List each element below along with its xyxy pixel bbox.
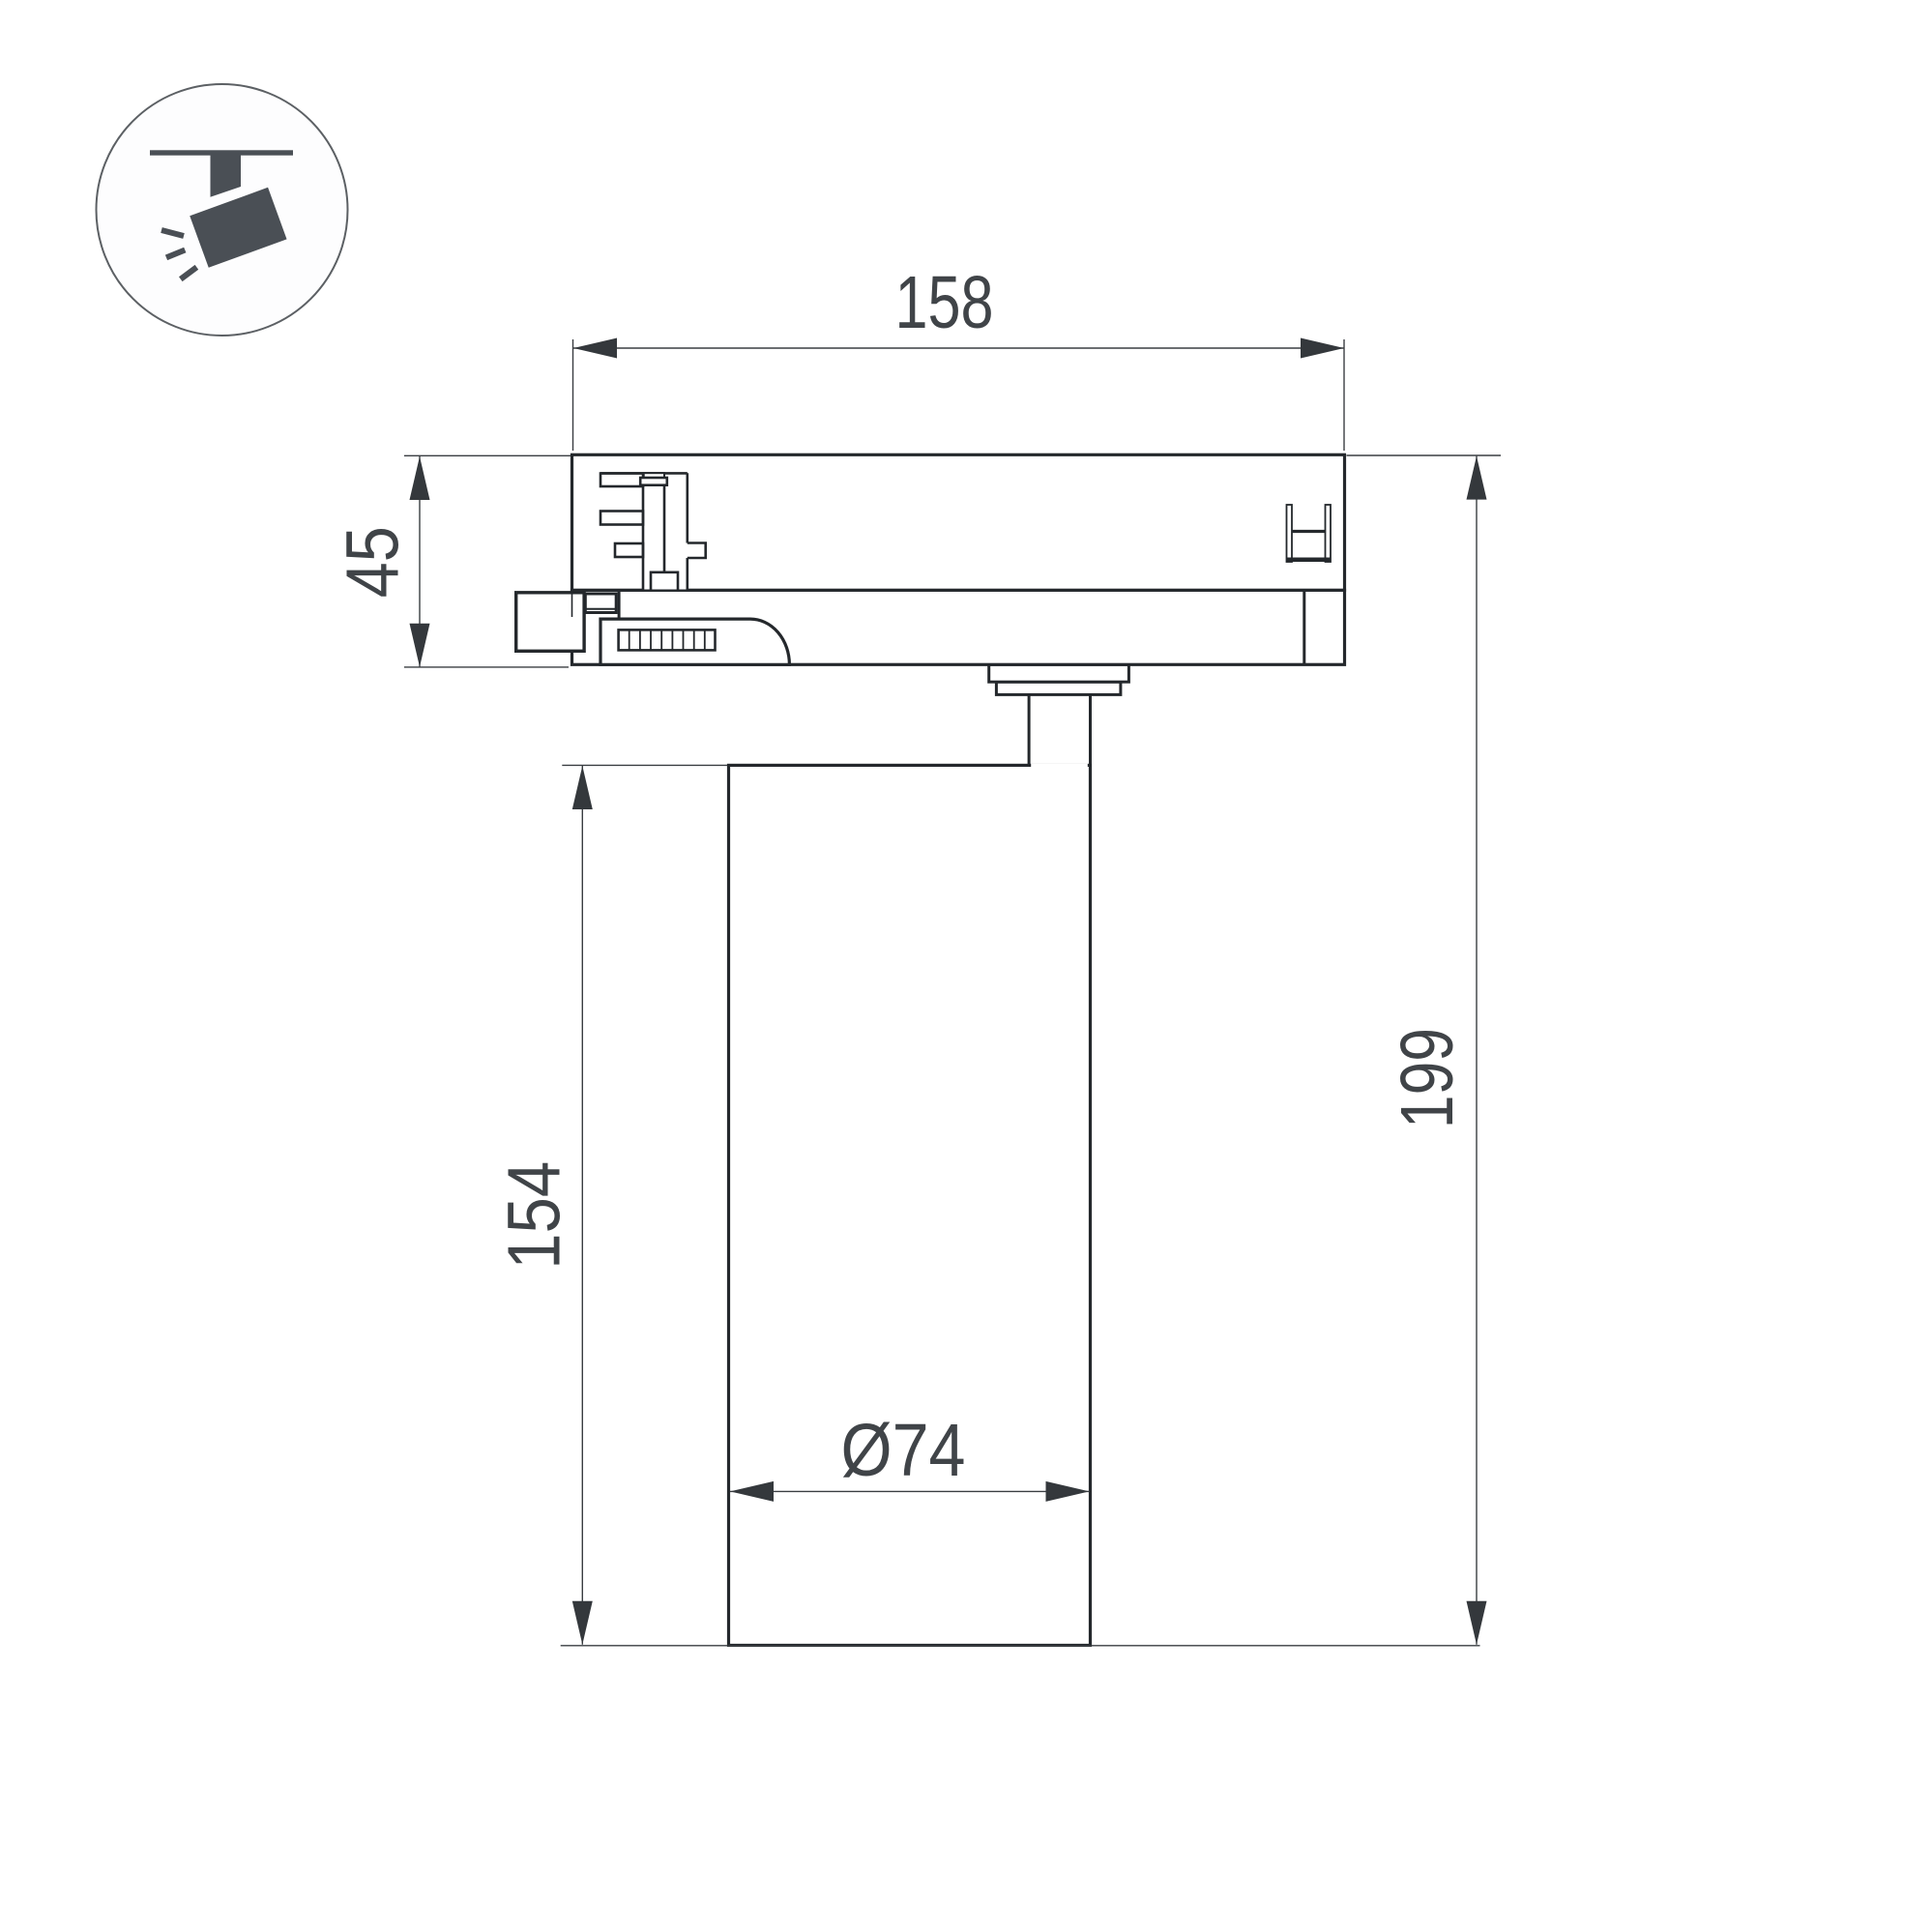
svg-text:199: 199: [1386, 1028, 1469, 1128]
svg-text:154: 154: [493, 1161, 576, 1270]
svg-text:45: 45: [332, 526, 415, 598]
svg-text:158: 158: [895, 261, 994, 344]
svg-text:Ø74: Ø74: [841, 1409, 966, 1492]
